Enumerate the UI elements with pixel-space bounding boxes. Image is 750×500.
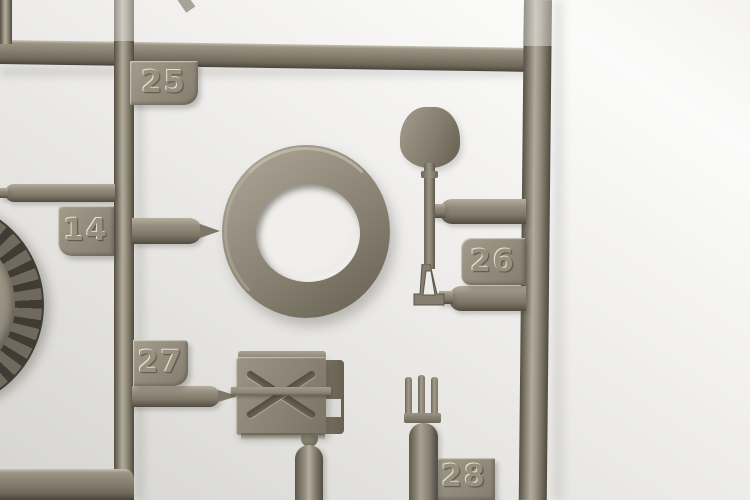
sprue-stub-top <box>178 0 196 13</box>
light-wash <box>524 0 552 46</box>
pitchfork-tine <box>431 377 438 417</box>
sprue-gate-left-nub <box>0 188 8 198</box>
light-wash <box>114 0 134 41</box>
pitchfork-shaft <box>409 423 438 500</box>
sprue-gate-can <box>132 386 220 407</box>
sprue-gate-left-wheel <box>5 184 115 202</box>
shovel-shaft <box>424 163 435 269</box>
part-tag-26: 26 <box>461 238 525 285</box>
tire-ring-part <box>222 145 390 318</box>
pitchfork-tine <box>405 377 412 417</box>
jerry-can-side <box>324 360 344 434</box>
tag-number-28: 28 <box>441 462 487 492</box>
sprue-photo: 25 14 26 27 28 <box>0 0 750 500</box>
shovel-d-handle <box>413 264 446 307</box>
shovel-blade <box>400 107 460 168</box>
sprue-runner-bottom-left <box>0 469 134 500</box>
sprue-gate-ring <box>132 218 202 244</box>
part-tag-25: 25 <box>130 61 198 105</box>
tag-number-27: 27 <box>138 348 184 378</box>
sprue-stub-top-left <box>0 0 12 44</box>
sprue-gate-handle <box>449 286 526 311</box>
shadow-right-of-left-runner <box>135 50 144 500</box>
part-tag-14: 14 <box>58 206 114 256</box>
shovel-ferrule <box>421 171 438 178</box>
road-wheel-part <box>0 200 44 410</box>
tag-number-26: 26 <box>470 247 516 277</box>
jerry-can-rib <box>231 387 331 395</box>
pitchfork-tine <box>418 375 425 417</box>
sprue-gate-ring-tip <box>200 224 220 238</box>
sprue-gate-shovel <box>440 199 526 224</box>
tag-number-14: 14 <box>63 216 109 246</box>
part-tag-27: 27 <box>133 340 188 386</box>
pitchfork-part <box>404 375 444 500</box>
shadow-right-of-right-runner <box>553 0 564 500</box>
jerry-can-part <box>236 351 348 443</box>
pitchfork-crossbar <box>404 413 441 423</box>
sprue-gate-can-bottom <box>295 445 323 500</box>
tag-number-25: 25 <box>141 68 187 98</box>
tire-ring-hole <box>256 184 360 282</box>
jerry-can-base <box>241 433 325 440</box>
jerry-can-face <box>236 357 326 435</box>
road-wheel-face <box>0 229 15 381</box>
